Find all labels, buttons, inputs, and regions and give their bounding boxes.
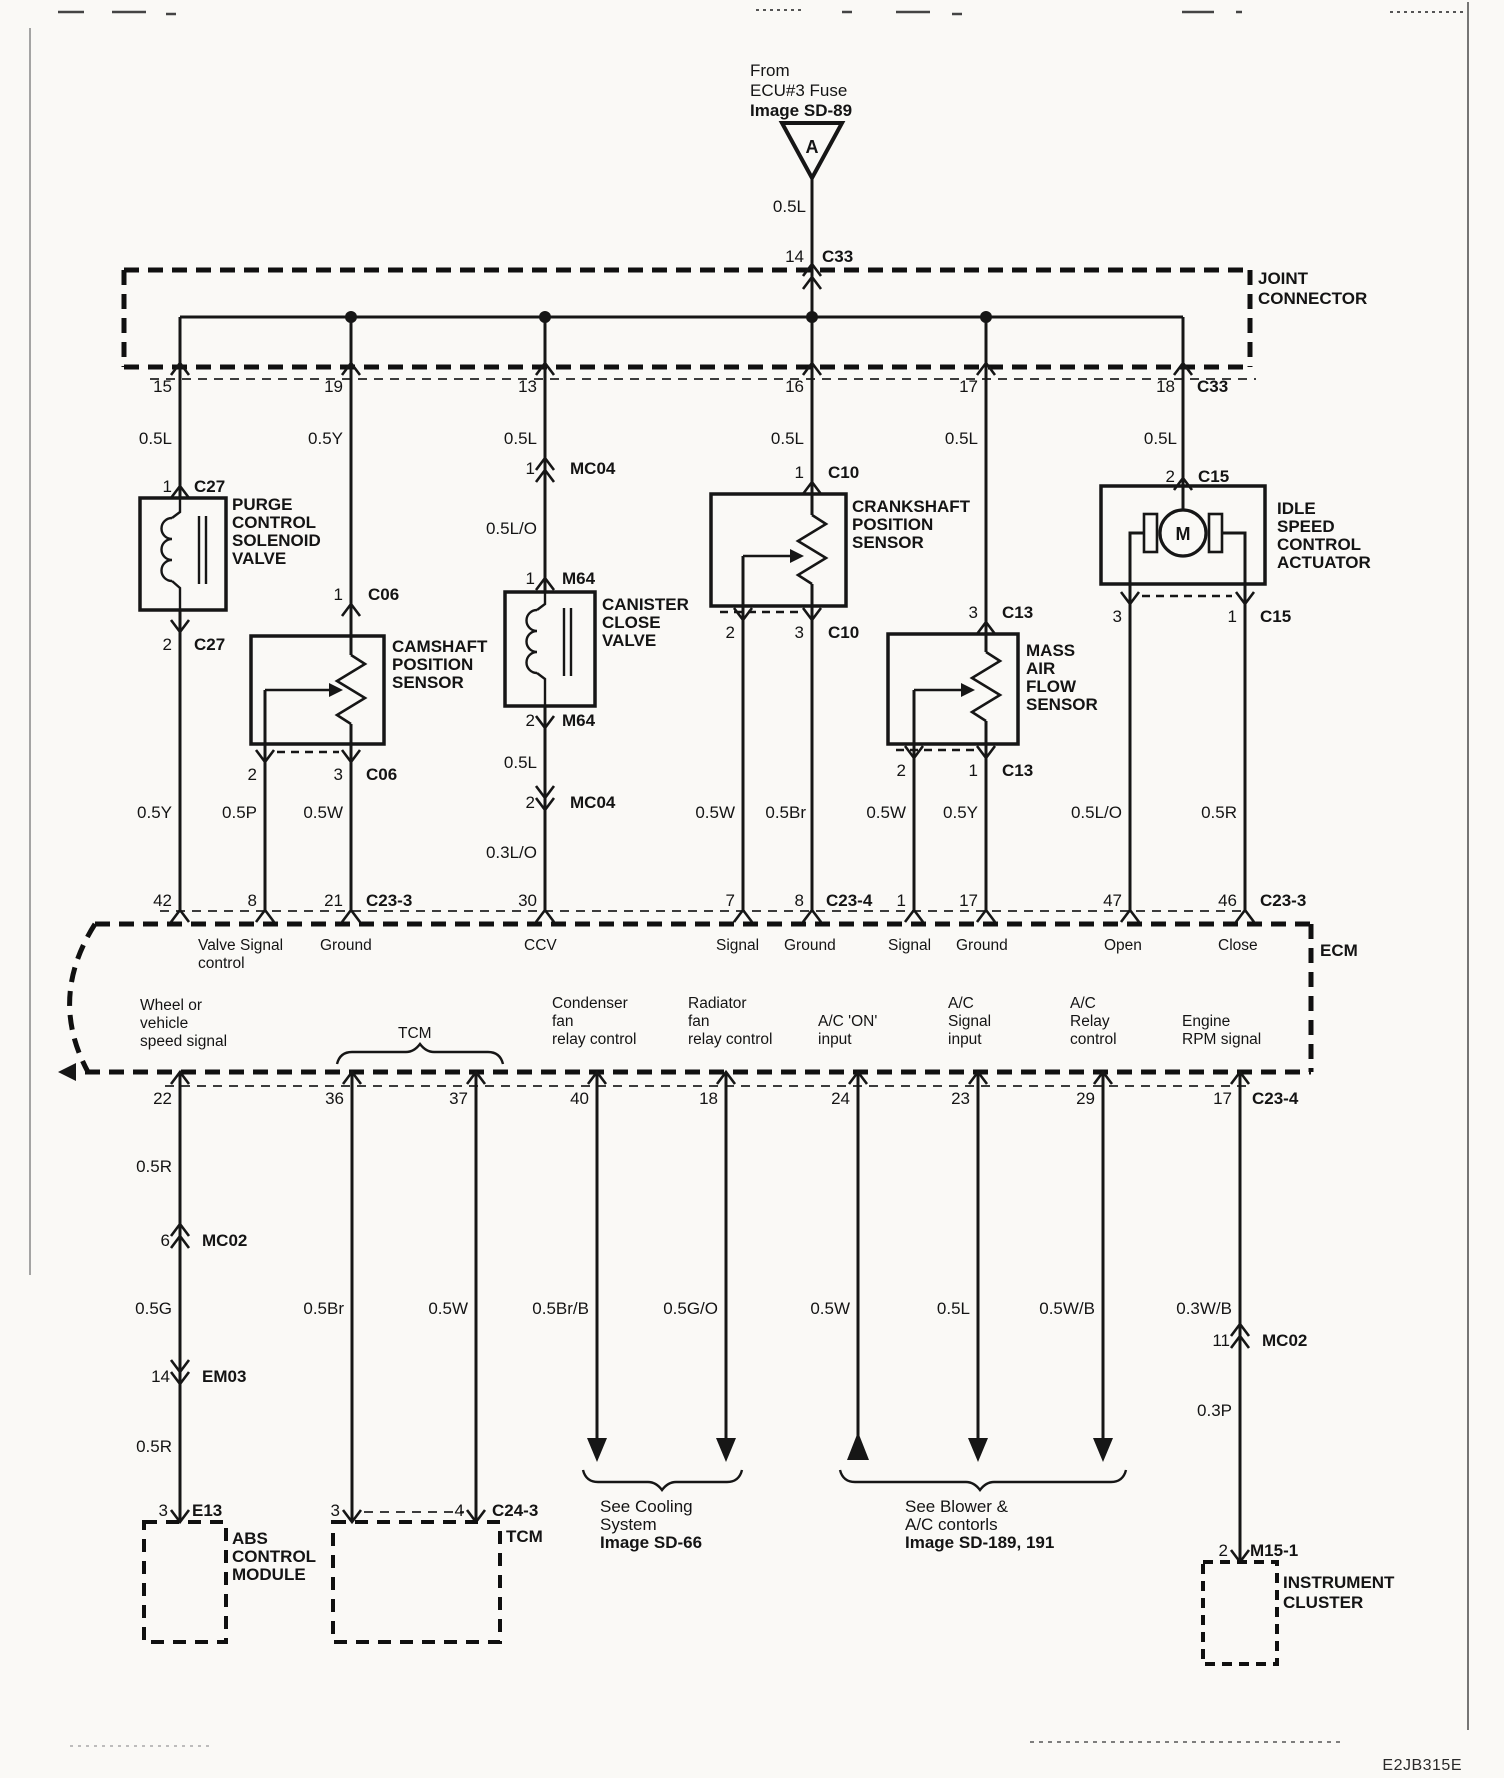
solenoid-core-icon <box>199 516 206 584</box>
wire-size: 0.3P <box>1197 1401 1232 1420</box>
connector-name: M64 <box>562 711 596 730</box>
wire-size: 0.5L <box>937 1299 970 1318</box>
component-name: CLOSE <box>602 613 661 632</box>
pin-number: 21 <box>324 891 343 910</box>
function-label: Signal <box>948 1013 991 1030</box>
pin-number: 2 <box>1219 1541 1228 1560</box>
component-name: FLOW <box>1026 677 1077 696</box>
function-label: RPM signal <box>1182 1031 1261 1048</box>
function-label: Wheel or <box>140 997 202 1014</box>
wire-size: 0.5Y <box>137 803 172 822</box>
component-name: PURGE <box>232 495 292 514</box>
pin-number: 42 <box>153 891 172 910</box>
cooling-fan-circuit: 0.5Br/B 0.5G/O See Cooling System Image … <box>532 1072 742 1552</box>
arrow-up-icon <box>847 1432 869 1460</box>
component-name: CRANKSHAFT <box>852 497 971 516</box>
function-label: Radiator <box>688 995 747 1012</box>
wire-size: 0.5G <box>135 1299 172 1318</box>
function-label: Signal <box>240 937 283 954</box>
wire-size: 0.5W <box>303 803 343 822</box>
camshaft-position-sensor: 1 C06 CAMSHAFT POSITION SENSOR 2 3 C06 0… <box>222 377 488 910</box>
instrument-cluster-box <box>1203 1562 1277 1664</box>
solenoid-core-icon <box>564 608 571 676</box>
pin-number: 3 <box>795 623 804 642</box>
wire-size: 0.5Y <box>308 429 343 448</box>
pin-number: 17 <box>1213 1089 1232 1108</box>
function-label: relay control <box>688 1031 772 1048</box>
wiring-diagram: From ECU#3 Fuse Image SD-89 A 0.5L 14 C3… <box>0 0 1504 1778</box>
motor-brush-icon <box>1144 514 1157 552</box>
connector-name: EM03 <box>202 1367 246 1386</box>
ecm-left-curve <box>70 924 95 1072</box>
wire-size: 0.5W <box>695 803 735 822</box>
component-name: CONTROL <box>232 513 316 532</box>
connector-name: C24-3 <box>492 1501 538 1520</box>
source-label: From <box>750 61 790 80</box>
source-image-ref: Image SD-89 <box>750 101 852 120</box>
wire-size: 0.5L <box>773 197 806 216</box>
connector-name: C23-4 <box>1252 1089 1299 1108</box>
component-name: SPEED <box>1277 517 1335 536</box>
pin-number: 15 <box>153 377 172 396</box>
pin-number: 13 <box>518 377 537 396</box>
pin-number: 1 <box>163 477 172 496</box>
pin-number: 22 <box>153 1089 172 1108</box>
abs-module-box <box>144 1522 226 1642</box>
connector-name: C23-3 <box>1260 891 1306 910</box>
wire-size: 0.3L/O <box>486 843 537 862</box>
wire-size: 0.5R <box>1201 803 1237 822</box>
pin-number: 2 <box>526 711 535 730</box>
pin-number: 1 <box>897 891 906 910</box>
component-name: VALVE <box>602 631 656 650</box>
pin-number: 4 <box>455 1501 464 1520</box>
crankshaft-position-sensor: 1 C10 CRANKSHAFT POSITION SENSOR 2 3 C10… <box>695 377 970 910</box>
mass-air-flow-sensor: 3 C13 MASS AIR FLOW SENSOR 2 1 C13 0.5W … <box>866 377 1097 910</box>
pin-number: 1 <box>334 585 343 604</box>
wire-size: 0.5R <box>136 1157 172 1176</box>
sensor-arrow-icon <box>329 683 343 697</box>
note-text: See Cooling <box>600 1497 693 1516</box>
power-source: From ECU#3 Fuse Image SD-89 A 0.5L 14 C3… <box>750 61 853 317</box>
connector-name: C33 <box>822 247 853 266</box>
pin-number: 7 <box>726 891 735 910</box>
ecm-border-arrow-icon <box>58 1063 76 1081</box>
pin-number: 3 <box>1113 607 1122 626</box>
wiring-diagram-page: From ECU#3 Fuse Image SD-89 A 0.5L 14 C3… <box>0 0 1504 1778</box>
pin-number: 14 <box>785 247 804 266</box>
pin-number: 2 <box>897 761 906 780</box>
pin-number: 23 <box>951 1089 970 1108</box>
function-label: Condenser <box>552 995 628 1012</box>
pin-number: 2 <box>526 793 535 812</box>
pin-number: 1 <box>1228 607 1237 626</box>
see-note-brace <box>583 1470 742 1490</box>
arrow-down-icon <box>716 1438 736 1462</box>
connector-name: MC02 <box>202 1231 247 1250</box>
pin-number: 29 <box>1076 1089 1095 1108</box>
component-name: TCM <box>506 1527 543 1546</box>
wire-size: 0.5L <box>504 753 537 772</box>
connector-name: MC04 <box>570 793 616 812</box>
component-name: MASS <box>1026 641 1075 660</box>
component-name: ABS <box>232 1529 268 1548</box>
function-label: Valve <box>198 937 236 954</box>
function-label: Engine <box>1182 1013 1230 1030</box>
pin-number: 3 <box>334 765 343 784</box>
pin-number: 2 <box>248 765 257 784</box>
canister-close-valve: 1 MC04 0.5L/O 1 M64 CANISTER CLOSE VALVE… <box>486 377 689 910</box>
joint-connector-box: JOINT CONNECTOR 15 19 13 16 17 18 C33 0.… <box>124 264 1367 448</box>
motor-brush-icon <box>1209 514 1222 552</box>
ecm-label: ECM <box>1320 941 1358 960</box>
connector-name: E13 <box>192 1501 222 1520</box>
component-name: CONTROL <box>232 1547 316 1566</box>
motor-letter: M <box>1176 524 1191 544</box>
function-label: input <box>948 1031 982 1048</box>
ac-blower-circuit: 0.5W 0.5L 0.5W/B See Blower & A/C contor… <box>810 1072 1126 1552</box>
pin-number: 19 <box>324 377 343 396</box>
connector-name: C10 <box>828 623 859 642</box>
idle-speed-control-actuator: 2 C15 M IDLE SPEED CONTROL ACTUATOR 3 1 … <box>1071 377 1371 910</box>
component-name: CANISTER <box>602 595 689 614</box>
pin-number: 8 <box>248 891 257 910</box>
component-name: MODULE <box>232 1565 306 1584</box>
pin-number: 3 <box>331 1501 340 1520</box>
connector-name: C06 <box>366 765 397 784</box>
sensor-arrow-icon <box>790 549 804 563</box>
function-label: Close <box>1218 937 1258 954</box>
component-name: POSITION <box>392 655 473 674</box>
wire-size: 0.5Y <box>943 803 978 822</box>
connector-name: C15 <box>1260 607 1291 626</box>
pin-number: 1 <box>795 463 804 482</box>
connector-name: C33 <box>1197 377 1228 396</box>
component-name: INSTRUMENT <box>1283 1573 1395 1592</box>
pin-number: 11 <box>1212 1331 1230 1350</box>
function-label: CCV <box>524 937 557 954</box>
scan-artifacts <box>30 2 1468 1746</box>
connector-name: C27 <box>194 635 225 654</box>
wheel-speed-circuit: 0.5R 6 MC02 0.5G 14 EM03 0.5R 3 E13 ABS … <box>135 1072 316 1642</box>
pin-number: 30 <box>518 891 537 910</box>
function-label: input <box>818 1031 852 1048</box>
tcm-brace <box>337 1044 503 1064</box>
note-text: Image SD-66 <box>600 1533 702 1552</box>
connector-name: MC04 <box>570 459 616 478</box>
component-name: CLUSTER <box>1283 1593 1363 1612</box>
arrow-down-icon <box>1093 1438 1113 1462</box>
wire-size: 0.5G/O <box>663 1299 718 1318</box>
pin-number: 47 <box>1103 891 1122 910</box>
function-label: Ground <box>784 937 836 954</box>
function-label: vehicle <box>140 1015 188 1032</box>
wire-size: 0.5L <box>139 429 172 448</box>
function-label: Ground <box>956 937 1008 954</box>
joint-connector-label: JOINT <box>1258 269 1309 288</box>
function-label: Ground <box>320 937 372 954</box>
function-label: control <box>1070 1031 1117 1048</box>
wire-size: 0.5L/O <box>1071 803 1122 822</box>
pin-number: 16 <box>785 377 804 396</box>
wire-size: 0.5Br <box>303 1299 344 1318</box>
wire-size: 0.5R <box>136 1437 172 1456</box>
note-text: Image SD-189, 191 <box>905 1533 1054 1552</box>
function-label: TCM <box>398 1025 432 1042</box>
connector-name: C13 <box>1002 603 1033 622</box>
pin-number: 17 <box>959 891 978 910</box>
pin-number: 3 <box>159 1501 168 1520</box>
see-note-brace <box>840 1470 1126 1490</box>
component-name: CONTROL <box>1277 535 1361 554</box>
wire-size: 0.5P <box>222 803 257 822</box>
wire-size: 0.5W/B <box>1039 1299 1095 1318</box>
pin-number: 14 <box>151 1367 170 1386</box>
component-name: SOLENOID <box>232 531 321 550</box>
component-name: SENSOR <box>392 673 464 692</box>
component-name: AIR <box>1026 659 1055 678</box>
pin-number: 18 <box>1156 377 1175 396</box>
function-label: A/C <box>948 995 974 1012</box>
pin-number: 2 <box>726 623 735 642</box>
component-name: POSITION <box>852 515 933 534</box>
wire-size: 0.5L <box>504 429 537 448</box>
function-label: Open <box>1104 937 1142 954</box>
resistor-icon <box>798 515 826 584</box>
pin-number: 17 <box>959 377 978 396</box>
pin-number: 6 <box>161 1231 170 1250</box>
wire-size: 0.5L/O <box>486 519 537 538</box>
joint-connector-label: CONNECTOR <box>1258 289 1367 308</box>
wire-size: 0.3W/B <box>1176 1299 1232 1318</box>
connector-name: C06 <box>368 585 399 604</box>
component-name: SENSOR <box>1026 695 1098 714</box>
wire-size: 0.5W <box>810 1299 850 1318</box>
engine-rpm-circuit: 0.3W/B 11 MC02 0.3P 2 M15-1 INSTRUMENT C… <box>1176 1072 1395 1664</box>
arrow-down-icon <box>968 1438 988 1462</box>
solenoid-coil-icon <box>527 610 538 673</box>
wire-size: 0.5L <box>771 429 804 448</box>
component-name: ACTUATOR <box>1277 553 1371 572</box>
component-name: CAMSHAFT <box>392 637 488 656</box>
sensor-arrow-icon <box>961 683 975 697</box>
function-label: Signal <box>888 937 931 954</box>
pin-number: 3 <box>969 603 978 622</box>
resistor-icon <box>972 652 1000 721</box>
solenoid-coil-icon <box>162 518 173 581</box>
function-label: relay control <box>552 1031 636 1048</box>
wire-size: 0.5L <box>1144 429 1177 448</box>
purge-control-solenoid-valve: 1 C27 PURGE CONTROL SOLENOID VALVE 2 C27… <box>137 377 321 910</box>
note-text: A/C contorls <box>905 1515 998 1534</box>
wire-size: 0.5W <box>866 803 906 822</box>
note-text: See Blower & <box>905 1497 1009 1516</box>
pin-number: 46 <box>1218 891 1237 910</box>
component-name: VALVE <box>232 549 286 568</box>
function-label: fan <box>552 1013 574 1030</box>
connector-name: M64 <box>562 569 596 588</box>
function-label: control <box>198 955 245 972</box>
pin-number: 37 <box>449 1089 468 1108</box>
pin-number: 36 <box>325 1089 344 1108</box>
circuit-tag-letter: A <box>806 137 819 157</box>
connector-name: C23-3 <box>366 891 412 910</box>
function-label: A/C 'ON' <box>818 1013 877 1030</box>
connector-name: C15 <box>1198 467 1229 486</box>
note-text: System <box>600 1515 657 1534</box>
component-name: IDLE <box>1277 499 1316 518</box>
wire-size: 0.5L <box>945 429 978 448</box>
wire-size: 0.5Br <box>765 803 806 822</box>
document-code: E2JB315E <box>1382 1757 1462 1774</box>
wire-size: 0.5W <box>428 1299 468 1318</box>
pin-number: 8 <box>795 891 804 910</box>
connector-name: C13 <box>1002 761 1033 780</box>
connector-name: C27 <box>194 477 225 496</box>
pin-number: 40 <box>570 1089 589 1108</box>
pin-number: 18 <box>699 1089 718 1108</box>
connector-name: MC02 <box>1262 1331 1307 1350</box>
connector-name: C10 <box>828 463 859 482</box>
function-label: Signal <box>716 937 759 954</box>
connector-name: C23-4 <box>826 891 873 910</box>
function-label: fan <box>688 1013 710 1030</box>
pin-number: 1 <box>526 569 535 588</box>
tcm-box <box>333 1522 500 1642</box>
pin-number: 24 <box>831 1089 850 1108</box>
function-label: Relay <box>1070 1013 1110 1030</box>
pin-number: 2 <box>163 635 172 654</box>
function-label: A/C <box>1070 995 1096 1012</box>
wire-size: 0.5Br/B <box>532 1299 589 1318</box>
pin-number: 1 <box>969 761 978 780</box>
connector-name: M15-1 <box>1250 1541 1298 1560</box>
pin-number: 2 <box>1166 467 1175 486</box>
arrow-down-icon <box>587 1438 607 1462</box>
source-label: ECU#3 Fuse <box>750 81 847 100</box>
tcm-circuit: 0.5Br 0.5W 3 4 C24-3 TCM <box>303 1072 542 1642</box>
function-label: speed signal <box>140 1033 227 1050</box>
pin-number: 1 <box>526 459 535 478</box>
component-name: SENSOR <box>852 533 924 552</box>
ecm-box: ECM Valve control Signal Ground CCV Sign… <box>58 910 1358 1108</box>
